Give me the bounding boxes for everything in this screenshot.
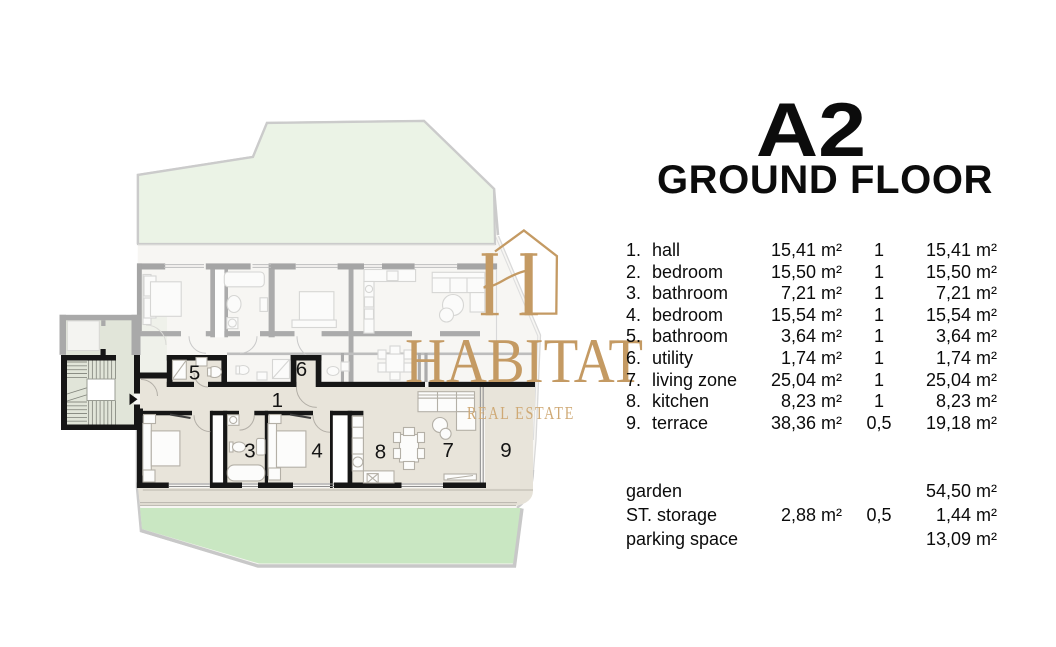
svg-text:3: 3 bbox=[244, 440, 255, 463]
svg-text:7: 7 bbox=[442, 439, 453, 462]
svg-text:8: 8 bbox=[375, 440, 386, 463]
svg-text:9: 9 bbox=[500, 439, 511, 462]
svg-text:4: 4 bbox=[311, 439, 322, 462]
